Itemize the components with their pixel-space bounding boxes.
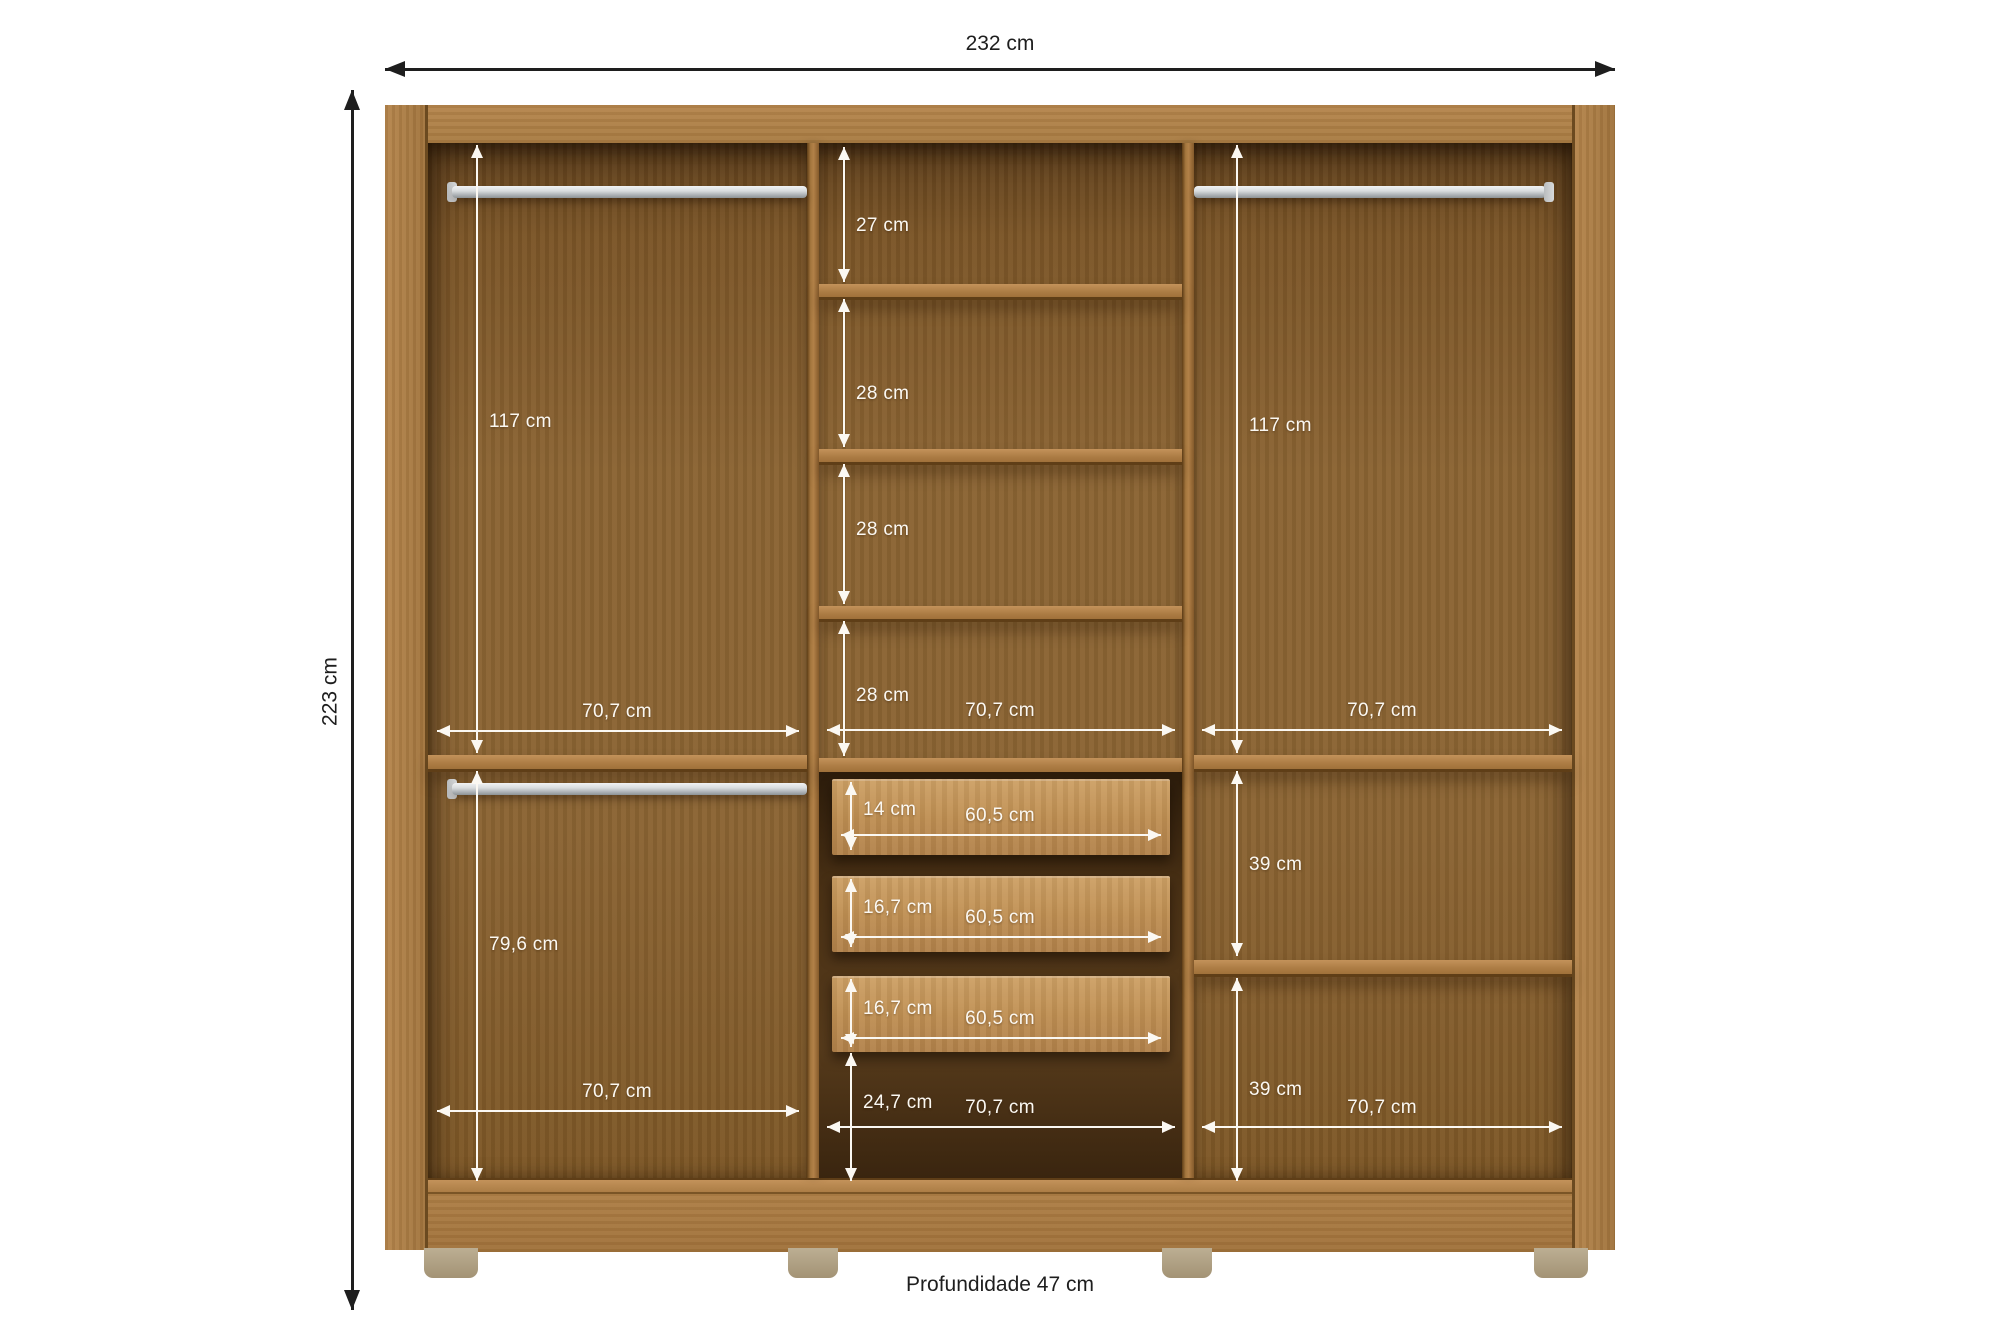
middle-upper-width-arrow: [827, 729, 1175, 731]
right-gap2-label: 39 cm: [1249, 1080, 1302, 1099]
right-upper-width-arrow: [1202, 729, 1562, 731]
right-rod-bracket: [1544, 182, 1554, 202]
wardrobe-dimension-diagram: 232 cm 223 cm Profundidade 47 cm 117 cm …: [0, 0, 2000, 1333]
middle-gap4-arrow: [843, 621, 845, 756]
middle-gap2-arrow: [843, 299, 845, 447]
drawer3-width-label: 60,5 cm: [910, 1009, 1090, 1028]
left-upper-height-arrow: [476, 145, 478, 753]
left-lower-width-arrow: [437, 1110, 799, 1112]
foot-1: [424, 1248, 478, 1278]
drawer2-width-arrow: [841, 936, 1161, 938]
right-upper-height-label: 117 cm: [1249, 416, 1312, 435]
middle-gap1-arrow: [843, 147, 845, 282]
middle-shelf-1: [819, 284, 1182, 300]
left-upper-hanging-rod: [452, 186, 807, 198]
drawer1-width-arrow: [841, 834, 1161, 836]
right-hanging-rod: [1194, 186, 1546, 198]
overall-height-label: 223 cm: [320, 634, 341, 750]
overall-height-arrow: [351, 90, 354, 1310]
right-shelf-1: [1194, 755, 1572, 772]
drawer1-width-label: 60,5 cm: [910, 806, 1090, 825]
drawer1-height-label: 14 cm: [863, 800, 916, 819]
right-bottom-width-label: 70,7 cm: [1292, 1098, 1472, 1117]
middle-shelf-3: [819, 606, 1182, 622]
middle-bottom-gap-arrow: [850, 1053, 852, 1181]
foot-3: [1162, 1248, 1212, 1278]
right-gap2-arrow: [1236, 978, 1238, 1181]
left-lower-width-label: 70,7 cm: [537, 1082, 697, 1101]
left-lower-height-label: 79,6 cm: [489, 935, 559, 954]
depth-note: Profundidade 47 cm: [850, 1274, 1150, 1295]
drawer2-width-label: 60,5 cm: [910, 908, 1090, 927]
right-gap1-label: 39 cm: [1249, 855, 1302, 874]
right-gap1-arrow: [1236, 771, 1238, 956]
right-upper-width-label: 70,7 cm: [1292, 701, 1472, 720]
middle-gap4-label: 28 cm: [856, 686, 909, 705]
middle-gap3-arrow: [843, 464, 845, 604]
right-bottom-width-arrow: [1202, 1126, 1562, 1128]
divider-left-middle: [807, 143, 819, 1178]
left-lower-height-arrow: [476, 771, 478, 1181]
left-middle-shelf: [428, 755, 807, 772]
drawer3-width-arrow: [841, 1037, 1161, 1039]
foot-4: [1534, 1248, 1588, 1278]
middle-gap1-label: 27 cm: [856, 216, 909, 235]
divider-middle-right: [1182, 143, 1194, 1178]
left-upper-width-label: 70,7 cm: [537, 702, 697, 721]
middle-bottom-width-label: 70,7 cm: [910, 1098, 1090, 1117]
right-upper-height-arrow: [1236, 145, 1238, 753]
left-upper-width-arrow: [437, 730, 799, 732]
middle-gap3-label: 28 cm: [856, 520, 909, 539]
plinth-panel: [428, 1192, 1572, 1252]
middle-upper-width-label: 70,7 cm: [910, 701, 1090, 720]
left-upper-height-label: 117 cm: [489, 412, 552, 431]
top-frame-panel: [385, 105, 1615, 146]
right-side-panel: [1572, 105, 1615, 1250]
left-lower-hanging-rod: [452, 783, 807, 795]
middle-bottom-width-arrow: [827, 1126, 1175, 1128]
left-side-panel: [385, 105, 428, 1250]
right-shelf-2: [1194, 960, 1572, 977]
overall-width-arrow: [385, 68, 1615, 71]
middle-shelf-2: [819, 449, 1182, 465]
foot-2: [788, 1248, 838, 1278]
middle-gap2-label: 28 cm: [856, 384, 909, 403]
overall-width-label: 232 cm: [930, 33, 1070, 54]
